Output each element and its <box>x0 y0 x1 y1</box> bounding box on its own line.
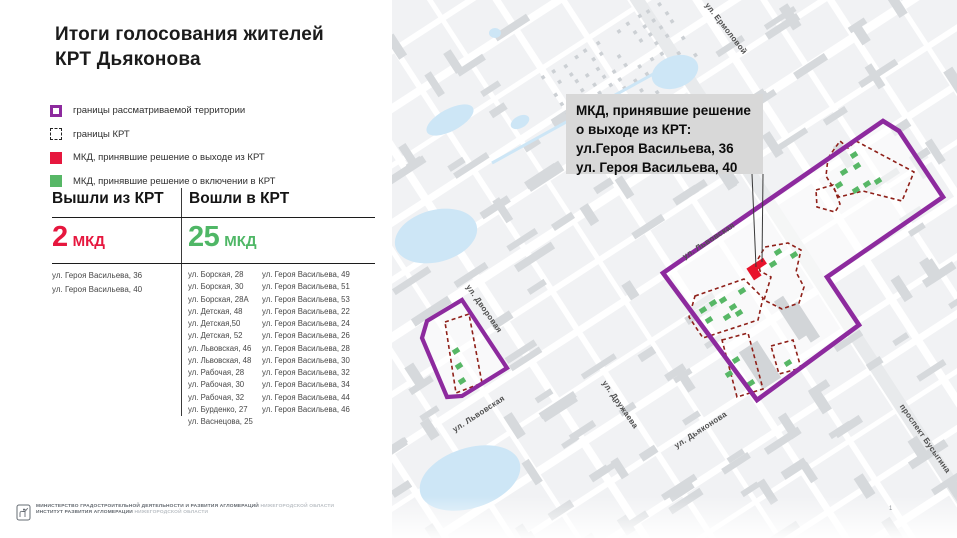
legend-item: границы КРТ <box>50 123 276 147</box>
footer-line1-bold: МИНИСТЕРСТВО ГРАДОСТРОИТЕЛЬНОЙ ДЕЯТЕЛЬНО… <box>36 504 259 509</box>
green-fill-swatch-icon <box>50 175 62 187</box>
address-item: ул. Героя Васильева, 51 <box>262 281 350 293</box>
address-item: ул. Героя Васильева, 30 <box>262 355 350 367</box>
address-item: ул. Львовская, 48 <box>188 355 253 367</box>
entered-header: Вошли в КРТ <box>189 190 289 208</box>
map-panel: ул. Ермоловойул. Львовскаяул. Львовскаяу… <box>392 0 957 538</box>
address-item: ул. Детская, 48 <box>188 306 253 318</box>
title-line2: КРТ Дьяконова <box>55 49 201 70</box>
address-item: ул. Героя Васильева, 24 <box>262 318 350 330</box>
address-item: ул. Борская, 30 <box>188 281 253 293</box>
footer: МИНИСТЕРСТВО ГРАДОСТРОИТЕЛЬНОЙ ДЕЯТЕЛЬНО… <box>16 504 334 521</box>
dashed-outline-swatch-icon <box>50 128 62 140</box>
legend-label: границы КРТ <box>73 129 130 140</box>
legend-label: границы рассматриваемой территории <box>73 105 245 116</box>
legend-label: МКД, принявшие решение о включении в КРТ <box>73 176 276 187</box>
entered-count-number: 25 <box>188 221 219 254</box>
footer-line2-bold: ИНСТИТУТ РАЗВИТИЯ АГЛОМЕРАЦИИ <box>36 510 133 515</box>
exited-header: Вышли из КРТ <box>52 190 164 208</box>
address-item: ул. Львовская, 46 <box>188 343 253 355</box>
legend-item: МКД, принявшие решение о выходе из КРТ <box>50 146 276 170</box>
legend-label: МКД, принявшие решение о выходе из КРТ <box>73 152 265 163</box>
rule-top <box>52 217 375 218</box>
callout-line: ул.Героя Васильева, 36 <box>576 139 763 158</box>
address-item: ул. Героя Васильева, 26 <box>262 330 350 342</box>
address-item: ул. Героя Васильева, 46 <box>262 404 350 416</box>
entered-count-unit: МКД <box>224 233 256 250</box>
footer-text: МИНИСТЕРСТВО ГРАДОСТРОИТЕЛЬНОЙ ДЕЯТЕЛЬНО… <box>36 504 334 516</box>
map-canvas: ул. Ермоловойул. Львовскаяул. Львовскаяу… <box>392 0 957 538</box>
address-item: ул. Детская, 52 <box>188 330 253 342</box>
map-callout: МКД, принявшие решениео выходе из КРТ:ул… <box>566 94 763 174</box>
entered-count: 25 МКД <box>188 221 257 254</box>
callout-line: ул. Героя Васильева, 40 <box>576 158 763 177</box>
exited-count-number: 2 <box>52 221 68 254</box>
column-divider <box>181 188 182 416</box>
results-block: Вышли из КРТ Вошли в КРТ 2 МКД 25 МКД ул… <box>52 188 375 420</box>
red-fill-swatch-icon <box>50 152 62 164</box>
address-item: ул. Детская,50 <box>188 318 253 330</box>
exited-count-unit: МКД <box>73 233 105 250</box>
page-title: Итоги голосования жителейКРТ Дьяконова <box>55 22 324 72</box>
address-item: ул. Рабочая, 32 <box>188 392 253 404</box>
address-item: ул. Героя Васильева, 49 <box>262 269 350 281</box>
address-item: ул. Рабочая, 28 <box>188 367 253 379</box>
exited-address-list: ул. Героя Васильева, 36ул. Героя Василье… <box>52 269 142 297</box>
legend: границы рассматриваемой территорииграниц… <box>50 99 276 193</box>
slide: МАСТЕР-ПЛАН ПЛОЩАДКИ КРТ УЛ. ДЬЯКОНОВА В… <box>0 0 957 538</box>
address-item: ул. Рабочая, 30 <box>188 379 253 391</box>
rule-bottom <box>52 263 375 264</box>
legend-item: границы рассматриваемой территории <box>50 99 276 123</box>
address-item: ул. Героя Васильева, 28 <box>262 343 350 355</box>
address-item: ул. Героя Васильева, 32 <box>262 367 350 379</box>
address-item: ул. Борская, 28 <box>188 269 253 281</box>
address-item: ул. Бурденко, 27 <box>188 404 253 416</box>
entered-address-list-col2: ул. Героя Васильева, 49ул. Героя Василье… <box>262 269 350 416</box>
title-line1: Итоги голосования жителей <box>55 24 324 45</box>
address-item: ул. Героя Васильева, 40 <box>52 283 142 297</box>
address-item: ул. Героя Васильева, 53 <box>262 294 350 306</box>
address-item: ул. Героя Васильева, 44 <box>262 392 350 404</box>
footer-line2-light: НИЖЕГОРОДСКОЙ ОБЛАСТИ <box>134 510 208 515</box>
coat-of-arms-icon <box>16 504 31 521</box>
address-item: ул. Героя Васильева, 22 <box>262 306 350 318</box>
callout-line: о выходе из КРТ: <box>576 120 763 139</box>
callout-line: МКД, принявшие решение <box>576 101 763 120</box>
entered-address-list-col1: ул. Борская, 28ул. Борская, 30ул. Борска… <box>188 269 253 428</box>
address-item: ул. Героя Васильева, 36 <box>52 269 142 283</box>
address-item: ул. Васнецова, 25 <box>188 416 253 428</box>
footer-line1-light: НИЖЕГОРОДСКОЙ ОБЛАСТИ <box>261 504 335 509</box>
address-item: ул. Героя Васильева, 34 <box>262 379 350 391</box>
address-item: ул. Борская, 28А <box>188 294 253 306</box>
page-number: 1 <box>889 506 892 512</box>
exited-count: 2 МКД <box>52 221 105 254</box>
purple-outline-swatch-icon <box>50 105 62 117</box>
info-panel: Итоги голосования жителейКРТ Дьяконова г… <box>0 0 392 538</box>
